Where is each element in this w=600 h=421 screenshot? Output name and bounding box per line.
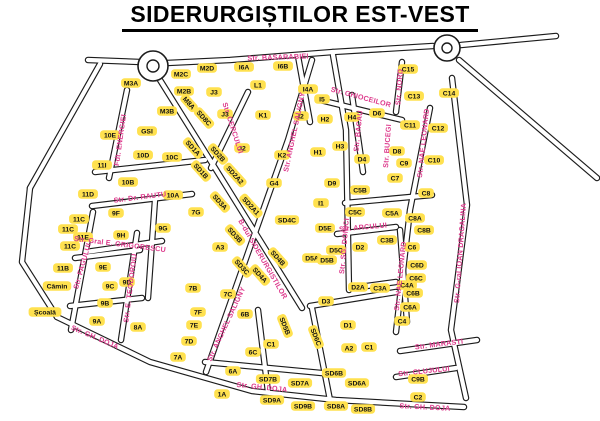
block-label: SD9A: [263, 397, 281, 404]
road-surface: [459, 60, 597, 178]
block-d1: D1: [340, 320, 356, 330]
block-label: C5B: [353, 187, 367, 194]
block-label: 9G: [158, 225, 167, 232]
block-sd9a: SD9A: [260, 395, 284, 405]
block-label: C5C: [348, 209, 362, 216]
block-label: C7: [391, 175, 400, 182]
block-g4: G4: [266, 178, 282, 188]
block-m2c: M2C: [171, 69, 191, 79]
block-label: I4A: [303, 86, 314, 93]
street-label-str-e-teodoroiu: Str. E. TEODOROIU: [121, 253, 138, 323]
block-c13: C13: [404, 91, 424, 101]
block-label: SD4C: [278, 217, 296, 224]
block-label: I6B: [278, 63, 289, 70]
block-c2: C2: [410, 392, 426, 402]
block-label: C6D: [410, 262, 424, 269]
block-label: 11B: [57, 265, 69, 272]
block-9b: 9B: [97, 298, 113, 308]
block-label: D6: [373, 110, 382, 117]
block-c11: C11: [400, 120, 420, 130]
block-c6a: C6A: [400, 302, 420, 312]
block-10d: 10D: [133, 150, 153, 160]
block-c5b: C5B: [350, 185, 370, 195]
block-11b: 11B: [53, 263, 73, 273]
block-label: M3A: [124, 80, 138, 87]
block-sd8c: SD8C: [192, 106, 215, 130]
block-d6: D6: [369, 108, 385, 118]
map-canvas: M3AM2CM2DM2BM3BM8ASD8CSD1AJ3J3J2L1I6AI6B…: [0, 0, 600, 421]
block-label: SD7A: [291, 380, 309, 387]
block-label: I5: [319, 96, 325, 103]
block-c1: C1: [361, 342, 377, 352]
block-label: 10D: [137, 152, 150, 159]
block-h1: H1: [310, 147, 326, 157]
block-label: C3A: [373, 285, 387, 292]
roundabout-inner-ring: [442, 43, 452, 53]
block-label: C9: [400, 160, 409, 167]
street-label-str-nae-leonard: Str. NAE LEONARD: [415, 108, 431, 178]
street-label-str-nord: Str. NORD: [393, 68, 405, 105]
block-7a: 7A: [170, 352, 186, 362]
block-label: 8A: [134, 324, 143, 331]
block-label: M2C: [174, 71, 188, 78]
block-label: C11: [404, 122, 416, 129]
block-label: D9: [328, 180, 337, 187]
block-label: C3B: [380, 237, 394, 244]
block-9f: 9F: [108, 208, 124, 218]
block-label: A3: [216, 244, 225, 251]
block-label: D2: [356, 244, 365, 251]
block-label: 11C: [64, 243, 76, 250]
block-9e: 9E: [95, 262, 111, 272]
block-7b: 7B: [185, 283, 201, 293]
block-label: C1: [365, 344, 374, 351]
block-m3a: M3A: [121, 78, 141, 88]
block-i6b: I6B: [273, 61, 293, 71]
block-6a: 6A: [225, 366, 241, 376]
block-c4: C4: [394, 316, 410, 326]
block-label: D4: [358, 156, 367, 163]
block-9a: 9A: [89, 316, 105, 326]
block-label: 11I: [97, 162, 106, 169]
block-j3: J3: [206, 87, 222, 97]
block-11c: 11C: [58, 224, 78, 234]
block-c7: C7: [387, 173, 403, 183]
map-page: SIDERURGIȘTILOR EST-VEST M3AM2CM2DM2BM3B…: [0, 0, 600, 421]
street-label-str-gh-doja: Str. GH. DOJA: [399, 401, 450, 413]
block-i6a: I6A: [234, 62, 254, 72]
street-label-str-bucegi: Str. BUCEGI: [381, 124, 393, 168]
road-surface: [312, 308, 330, 400]
block-sd6c: SD6C: [307, 324, 325, 350]
block-label: 9C: [106, 283, 115, 290]
block-6b: 6B: [237, 309, 253, 319]
block-gsi: GSI: [137, 126, 157, 136]
road-surface: [333, 46, 433, 52]
block-label: SD6C: [309, 328, 322, 348]
block-h3: H3: [332, 141, 348, 151]
block-c6d: C6D: [407, 260, 427, 270]
block-c6b: C6B: [403, 288, 423, 298]
block-k1: K1: [255, 110, 271, 120]
block-c10: C10: [424, 155, 444, 165]
block-label: D5E: [318, 225, 332, 232]
block-label: SD6B: [325, 370, 343, 377]
block-i1: I1: [313, 198, 329, 208]
block-label: C8B: [417, 227, 431, 234]
block-label: 10C: [166, 154, 179, 161]
block-label: L1: [254, 82, 262, 89]
block-l1: L1: [250, 80, 266, 90]
block-i5: I5: [314, 94, 330, 104]
block-c5c: C5C: [345, 207, 365, 217]
street-label-str-g-ral-ioan-dragalina: Str. G-ral IOAN DRAGALINA: [452, 203, 468, 304]
block-8a: 8A: [130, 322, 146, 332]
block-label: SD6A: [348, 380, 366, 387]
block-d5b: D5B: [317, 255, 337, 265]
block-label: I1: [318, 200, 324, 207]
block-label: D3: [322, 298, 331, 305]
block-label: M2D: [200, 65, 214, 72]
block-a2: A2: [341, 343, 357, 353]
block-label: C12: [432, 125, 445, 132]
block-label: SD8B: [354, 406, 372, 413]
block-label: 10A: [167, 192, 180, 199]
block-label: C6A: [403, 304, 417, 311]
block-11c: 11C: [69, 214, 89, 224]
block-d3: D3: [318, 296, 334, 306]
roundabout: [138, 51, 168, 81]
block-label: SD9B: [294, 403, 312, 410]
road-surface: [88, 60, 140, 62]
block-label: C6B: [406, 290, 420, 297]
facility-coal: Școală: [29, 307, 62, 317]
block-label: C14: [443, 90, 456, 97]
roundabout-inner-ring: [147, 60, 159, 72]
block-label: C9B: [411, 376, 425, 383]
block-label: 7F: [194, 309, 202, 316]
block-label: 9A: [93, 318, 102, 325]
block-label: C4: [398, 318, 407, 325]
block-9g: 9G: [155, 223, 171, 233]
block-sd5b: SD5B: [276, 313, 294, 339]
block-label: 10E: [104, 132, 117, 139]
block-h2: H2: [317, 114, 333, 124]
block-10c: 10C: [162, 152, 182, 162]
block-c5a: C5A: [382, 208, 402, 218]
block-10b: 10B: [118, 177, 138, 187]
block-m3b: M3B: [157, 106, 177, 116]
block-label: Cămin: [47, 283, 68, 290]
block-label: G4: [269, 180, 278, 187]
block-label: 7G: [191, 209, 200, 216]
block-sd7a: SD7A: [288, 378, 312, 388]
block-d9: D9: [324, 178, 340, 188]
block-sd8a: SD8A: [324, 401, 348, 411]
block-a3: A3: [212, 242, 228, 252]
block-label: J3: [210, 89, 218, 96]
block-label: 1A: [218, 391, 227, 398]
roundabout: [434, 35, 460, 61]
road-surface: [30, 64, 100, 188]
block-label: H1: [314, 149, 323, 156]
block-11d: 11D: [78, 189, 98, 199]
facility-c-min: Cămin: [43, 281, 72, 291]
block-c12: C12: [428, 123, 448, 133]
block-label: 7A: [174, 354, 183, 361]
block-label: H2: [321, 116, 330, 123]
block-label: 6B: [241, 311, 250, 318]
block-label: Școală: [34, 309, 56, 316]
block-sd8b: SD8B: [351, 404, 375, 414]
block-label: 10B: [122, 179, 135, 186]
block-c8a: C8A: [405, 213, 425, 223]
block-label: C10: [428, 157, 441, 164]
block-label: 9E: [99, 264, 108, 271]
block-label: 11C: [62, 226, 74, 233]
block-c14: C14: [439, 88, 459, 98]
block-7f: 7F: [190, 307, 206, 317]
block-label: 9F: [112, 210, 120, 217]
block-label: C6: [408, 244, 417, 251]
block-9c: 9C: [102, 281, 118, 291]
block-7e: 7E: [186, 320, 202, 330]
block-c9: C9: [396, 158, 412, 168]
block-label: D2A: [351, 284, 365, 291]
block-label: GSI: [141, 128, 153, 135]
block-d5e: D5E: [315, 223, 335, 233]
block-c3a: C3A: [370, 283, 390, 293]
block-label: 7E: [190, 322, 199, 329]
block-1a: 1A: [214, 389, 230, 399]
block-label: M3B: [160, 108, 174, 115]
map-title-text: SIDERURGIȘTILOR EST-VEST: [122, 1, 477, 32]
block-label: A2: [345, 345, 354, 352]
block-d2a: D2A: [348, 282, 368, 292]
block-label: 7B: [189, 285, 198, 292]
block-6c: 6C: [245, 347, 261, 357]
block-11i: 11I: [92, 160, 112, 170]
block-7d: 7D: [181, 336, 197, 346]
block-label: H3: [336, 143, 345, 150]
block-d4: D4: [354, 154, 370, 164]
block-label: SD5B: [278, 317, 291, 337]
block-c8b: C8B: [414, 225, 434, 235]
road-surface: [22, 188, 57, 317]
map-title: SIDERURGIȘTILOR EST-VEST: [0, 1, 600, 32]
block-label: 11C: [73, 216, 85, 223]
block-label: D5B: [320, 257, 334, 264]
block-label: 6C: [249, 349, 258, 356]
block-label: 6A: [229, 368, 238, 375]
block-d8: D8: [389, 146, 405, 156]
block-c8: C8: [418, 188, 434, 198]
block-sd9b: SD9B: [291, 401, 315, 411]
street-label-str-anghel-saligny: Str. ANGHEL SALIGNY: [281, 91, 307, 172]
block-label: C2: [414, 394, 423, 401]
block-label: C13: [408, 93, 421, 100]
block-label: D1: [344, 322, 353, 329]
street-label-str-gh-doja: Str. GH. DOJA: [70, 323, 120, 351]
block-sd6a: SD6A: [345, 378, 369, 388]
block-c3b: C3B: [377, 235, 397, 245]
block-m2d: M2D: [197, 63, 217, 73]
block-label: SD8A: [327, 403, 345, 410]
block-label: I6A: [239, 64, 250, 71]
block-label: D8: [393, 148, 402, 155]
block-sd6b: SD6B: [322, 368, 346, 378]
block-label: 7C: [224, 291, 233, 298]
block-label: C8A: [408, 215, 422, 222]
block-label: 7D: [185, 338, 194, 345]
block-c1: C1: [263, 339, 279, 349]
block-7g: 7G: [188, 207, 204, 217]
block-label: 11D: [82, 191, 94, 198]
block-label: C8: [422, 190, 431, 197]
block-label: 9B: [101, 300, 110, 307]
block-label: D5A: [305, 255, 319, 262]
block-label: C5A: [385, 210, 399, 217]
block-label: C1: [267, 341, 276, 348]
block-d2: D2: [352, 242, 368, 252]
block-label: K1: [259, 112, 268, 119]
block-sd4c: SD4C: [275, 215, 299, 225]
